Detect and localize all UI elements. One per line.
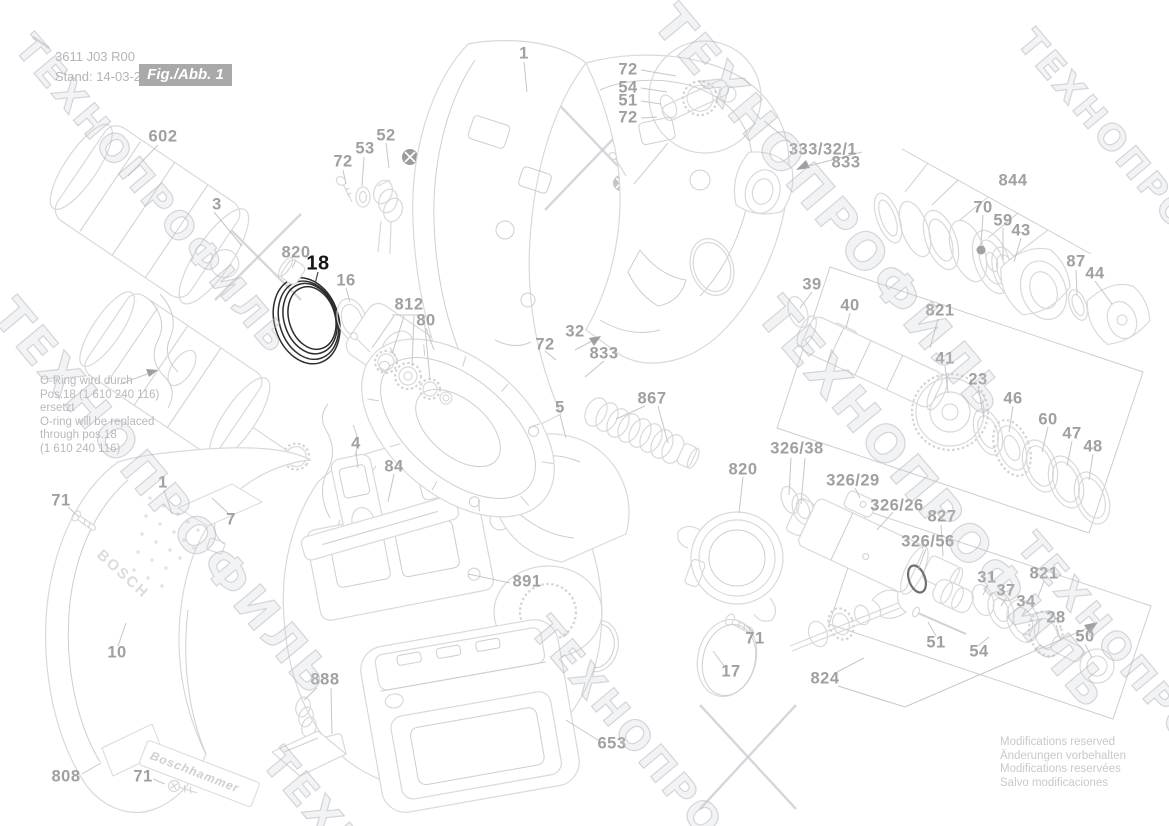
footer-line: Änderungen vorbehalten: [1000, 750, 1126, 764]
note-line: O-ring will be replaced: [40, 416, 159, 430]
document-code: 3611 J03 R00: [55, 49, 135, 64]
footer-line: Salvo modificaciones: [1000, 777, 1126, 791]
note-line: O-Ring wird durch: [40, 375, 159, 389]
battery-pack-653: [357, 616, 583, 816]
exploded-diagram-art: BOSCH Boschhammer: [0, 0, 1169, 826]
footer-line: Modifications reserved: [1000, 736, 1126, 750]
oring-replacement-note: O-Ring wird durchPos.18 (1 610 240 116)e…: [40, 375, 159, 456]
figure-badge: Fig./Abb. 1: [139, 64, 232, 86]
screw-washer-spring-52-53: [335, 175, 406, 254]
footer-line: Modifications reservées: [1000, 763, 1126, 777]
gear-housing-820: [678, 512, 783, 621]
modifications-note: Modifications reservedÄnderungen vorbeha…: [1000, 736, 1126, 790]
chuck-parts-chain: [869, 149, 1156, 349]
note-line: through pos.18: [40, 429, 159, 443]
document-date: Stand: 14-03-27: [55, 69, 148, 84]
note-line: ersetzt: [40, 402, 159, 416]
intermediate-shaft-assembly: [784, 294, 1116, 529]
parts-diagram-page: BOSCH Boschhammer: [0, 0, 1169, 826]
note-line: Pos.18 (1 610 240 116): [40, 389, 159, 403]
note-line: (1 610 240 116): [40, 443, 159, 457]
motor-field-assembly: [37, 112, 268, 318]
selector-shaft-gears: [790, 590, 906, 651]
